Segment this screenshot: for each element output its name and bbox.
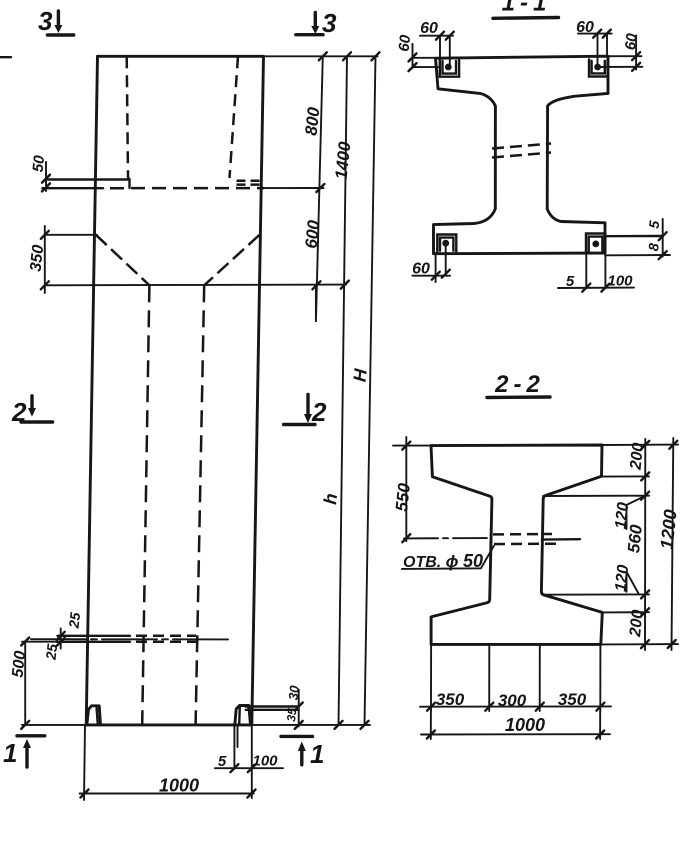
svg-text:1200: 1200 (657, 509, 681, 551)
svg-text:30: 30 (286, 684, 303, 701)
svg-text:2: 2 (311, 397, 327, 427)
svg-text:1000: 1000 (505, 715, 545, 735)
svg-text:35: 35 (284, 707, 299, 722)
svg-text:50: 50 (30, 154, 49, 173)
svg-text:600: 600 (302, 219, 324, 250)
svg-text:120: 120 (613, 501, 633, 529)
svg-text:100: 100 (607, 273, 633, 290)
svg-text:1400: 1400 (332, 140, 355, 180)
svg-text:25: 25 (65, 611, 83, 629)
svg-text:1-1: 1-1 (502, 0, 552, 17)
svg-text:60: 60 (576, 19, 594, 36)
svg-text:1: 1 (3, 738, 17, 768)
svg-text:200: 200 (627, 442, 647, 471)
svg-text:5: 5 (218, 753, 227, 770)
svg-text:350: 350 (28, 244, 48, 272)
svg-text:100: 100 (252, 753, 278, 770)
svg-text:1: 1 (310, 739, 324, 769)
svg-text:60: 60 (412, 261, 430, 278)
svg-text:500: 500 (10, 650, 30, 678)
svg-text:350: 350 (558, 690, 587, 709)
svg-text:550: 550 (392, 482, 414, 513)
svg-text:200: 200 (627, 609, 647, 638)
svg-text:25: 25 (42, 643, 60, 661)
svg-text:1000: 1000 (159, 776, 199, 796)
svg-text:60: 60 (396, 33, 415, 52)
svg-text:3: 3 (322, 8, 337, 38)
svg-text:800: 800 (302, 106, 324, 137)
svg-text:350: 350 (436, 690, 465, 709)
svg-text:5: 5 (566, 273, 575, 290)
svg-text:h: h (320, 492, 341, 505)
svg-text:3: 3 (38, 6, 53, 36)
svg-text:300: 300 (498, 691, 527, 710)
svg-text:60: 60 (622, 32, 641, 51)
svg-text:2-2: 2-2 (494, 371, 545, 398)
svg-text:60: 60 (420, 20, 438, 37)
